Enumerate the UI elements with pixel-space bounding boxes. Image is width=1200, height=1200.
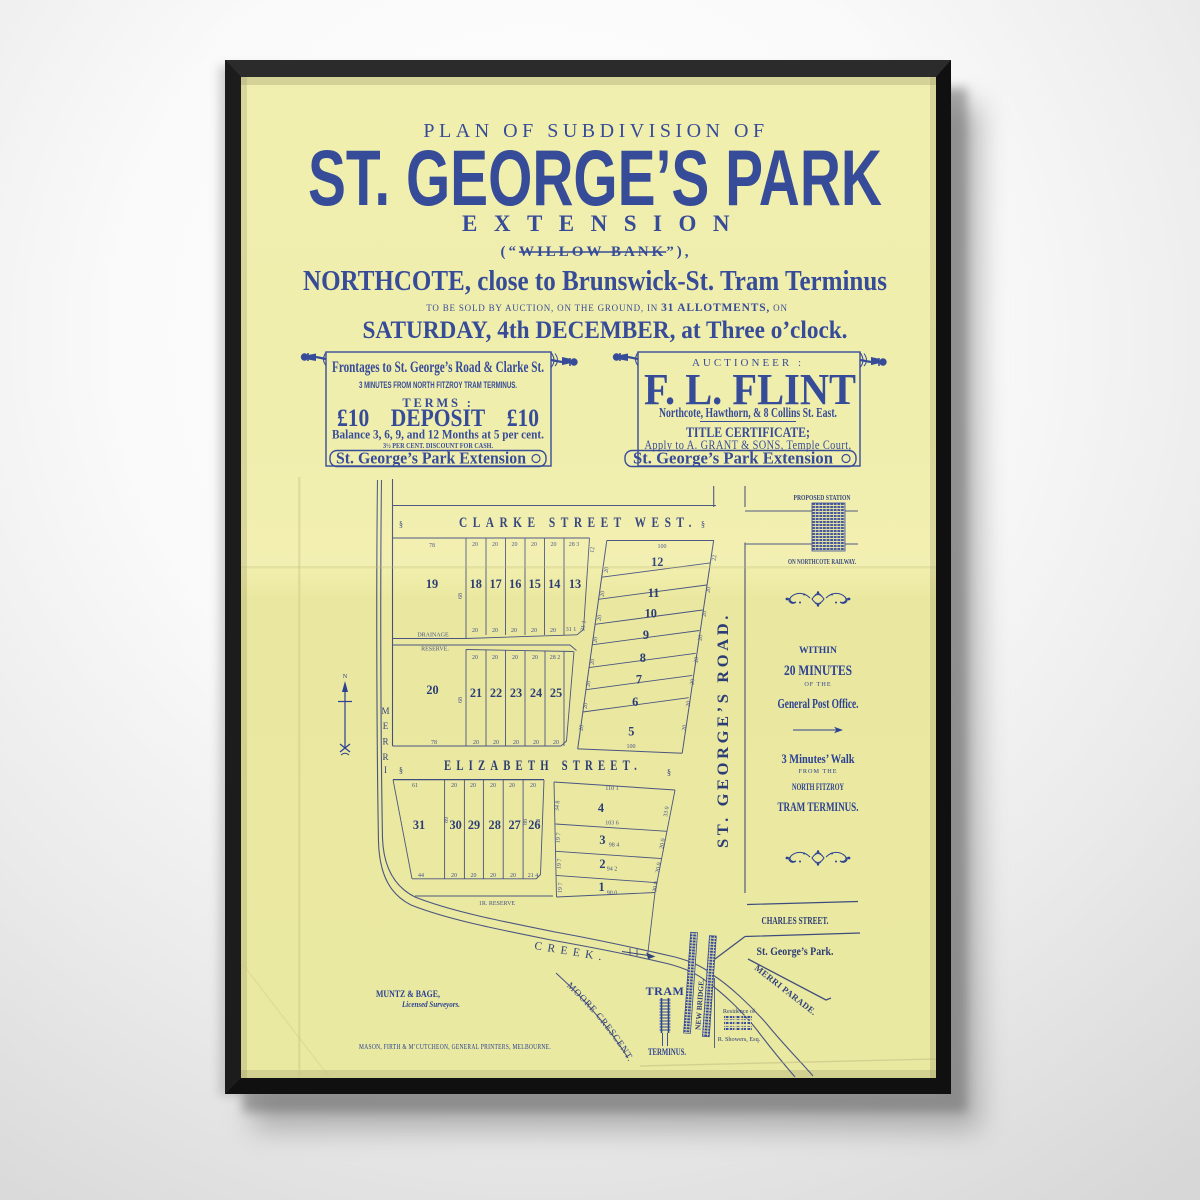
svg-text:16: 16 bbox=[509, 577, 521, 591]
svg-text:20: 20 bbox=[550, 628, 556, 634]
svg-text:100: 100 bbox=[627, 744, 636, 750]
svg-text:E: E bbox=[383, 721, 389, 731]
svg-text:20: 20 bbox=[512, 655, 518, 661]
svg-text:20 MINUTES: 20 MINUTES bbox=[784, 663, 852, 679]
svg-text:R. Showers, Esq.: R. Showers, Esq. bbox=[718, 1036, 761, 1043]
svg-text:20: 20 bbox=[586, 680, 593, 687]
svg-text:20: 20 bbox=[690, 678, 697, 685]
svg-text:31 1: 31 1 bbox=[566, 627, 577, 633]
svg-text:20: 20 bbox=[686, 700, 693, 707]
svg-text:20: 20 bbox=[698, 634, 705, 641]
svg-text:20: 20 bbox=[490, 783, 496, 789]
svg-text:13: 13 bbox=[569, 577, 581, 591]
svg-text:20: 20 bbox=[593, 636, 600, 643]
svg-text:20: 20 bbox=[513, 740, 519, 746]
svg-text:TRAM: TRAM bbox=[646, 984, 685, 998]
svg-text:19 7: 19 7 bbox=[557, 858, 564, 869]
svg-text:21 4: 21 4 bbox=[528, 873, 539, 879]
svg-text:General Post Office.: General Post Office. bbox=[778, 696, 859, 711]
svg-text:CHARLES STREET.: CHARLES STREET. bbox=[762, 916, 829, 927]
svg-text:28: 28 bbox=[489, 818, 501, 832]
svg-text:21: 21 bbox=[470, 686, 482, 700]
svg-text:20: 20 bbox=[694, 656, 701, 663]
svg-text:20: 20 bbox=[490, 873, 496, 879]
svg-text:8: 8 bbox=[640, 651, 646, 665]
svg-text:R: R bbox=[382, 752, 388, 762]
svg-text:15: 15 bbox=[529, 577, 541, 591]
svg-text:20: 20 bbox=[511, 628, 517, 634]
svg-text:Residence of: Residence of bbox=[723, 1008, 756, 1015]
svg-text:NORTH FITZROY: NORTH FITZROY bbox=[792, 783, 844, 793]
svg-text:90 0: 90 0 bbox=[607, 891, 618, 897]
svg-text:I: I bbox=[384, 765, 387, 775]
svg-text:61: 61 bbox=[412, 783, 418, 789]
svg-text:DRAINAGE: DRAINAGE bbox=[417, 633, 449, 639]
svg-text:19 7: 19 7 bbox=[558, 882, 565, 893]
svg-text:20: 20 bbox=[472, 655, 478, 661]
svg-text:§: § bbox=[667, 768, 671, 777]
svg-text:9: 9 bbox=[643, 628, 649, 642]
svg-text:20: 20 bbox=[532, 655, 538, 661]
svg-text:20: 20 bbox=[590, 658, 597, 665]
svg-text:§: § bbox=[399, 766, 403, 775]
svg-text:20: 20 bbox=[702, 610, 709, 617]
svg-text:20: 20 bbox=[473, 740, 479, 746]
svg-text:20: 20 bbox=[553, 740, 559, 746]
svg-text:20: 20 bbox=[470, 783, 476, 789]
svg-text:19: 19 bbox=[426, 577, 438, 591]
svg-text:ELIZABETH STREET.: ELIZABETH STREET. bbox=[444, 758, 642, 774]
svg-text:10: 10 bbox=[645, 607, 657, 621]
svg-text:20: 20 bbox=[510, 873, 516, 879]
svg-text:R: R bbox=[382, 737, 388, 747]
svg-text:20: 20 bbox=[451, 873, 457, 879]
svg-text:98 4: 98 4 bbox=[609, 843, 620, 849]
svg-text:2: 2 bbox=[599, 857, 605, 871]
svg-text:78: 78 bbox=[431, 740, 437, 746]
svg-text:WITHIN: WITHIN bbox=[799, 646, 837, 656]
svg-text:34 8: 34 8 bbox=[555, 800, 562, 811]
svg-text:19 7: 19 7 bbox=[556, 832, 563, 843]
svg-text:5: 5 bbox=[628, 725, 634, 739]
svg-text:20: 20 bbox=[579, 724, 586, 731]
svg-text:OF THE: OF THE bbox=[804, 681, 831, 688]
svg-text:6: 6 bbox=[632, 695, 638, 709]
svg-text:20: 20 bbox=[597, 614, 604, 621]
svg-text:78: 78 bbox=[536, 819, 542, 825]
svg-text:20: 20 bbox=[509, 783, 515, 789]
svg-text:29: 29 bbox=[468, 818, 480, 832]
svg-text:20: 20 bbox=[492, 628, 498, 634]
svg-text:M: M bbox=[381, 706, 389, 716]
svg-text:24: 24 bbox=[530, 686, 542, 700]
svg-text:Licensed Surveyors.: Licensed Surveyors. bbox=[401, 999, 460, 1009]
svg-text:St. George’s Park.: St. George’s Park. bbox=[757, 946, 834, 958]
svg-text:20: 20 bbox=[682, 724, 689, 731]
svg-text:22: 22 bbox=[490, 686, 502, 700]
svg-text:20: 20 bbox=[472, 628, 478, 634]
svg-text:68: 68 bbox=[458, 593, 464, 599]
svg-text:4: 4 bbox=[598, 801, 604, 815]
svg-text:20: 20 bbox=[531, 628, 537, 634]
svg-text:20: 20 bbox=[533, 740, 539, 746]
svg-text:1R. RESERVE: 1R. RESERVE bbox=[479, 901, 516, 907]
svg-text:3 Minutes’ Walk: 3 Minutes’ Walk bbox=[782, 752, 855, 766]
svg-text:11: 11 bbox=[648, 586, 660, 600]
svg-text:RESERVE.: RESERVE. bbox=[421, 647, 449, 653]
svg-text:20: 20 bbox=[471, 873, 477, 879]
svg-text:17: 17 bbox=[489, 577, 501, 591]
svg-text:TRAM TERMINUS.: TRAM TERMINUS. bbox=[778, 800, 859, 814]
svg-text:14: 14 bbox=[548, 577, 560, 591]
svg-text:20: 20 bbox=[600, 590, 607, 597]
svg-text:MASON, FIRTH & M’CUTCHEON, GEN: MASON, FIRTH & M’CUTCHEON, GENERAL PRINT… bbox=[359, 1042, 551, 1051]
svg-text:20: 20 bbox=[583, 702, 590, 709]
svg-text:103 6: 103 6 bbox=[605, 821, 619, 827]
svg-text:7: 7 bbox=[636, 673, 642, 687]
svg-text:94 2: 94 2 bbox=[607, 867, 618, 873]
svg-text:1: 1 bbox=[599, 880, 605, 894]
svg-text:20: 20 bbox=[426, 683, 438, 697]
svg-text:3: 3 bbox=[599, 833, 605, 847]
svg-text:FROM THE: FROM THE bbox=[798, 768, 837, 775]
svg-text:20: 20 bbox=[493, 740, 499, 746]
svg-text:23: 23 bbox=[510, 686, 522, 700]
svg-text:44: 44 bbox=[418, 873, 424, 879]
svg-text:ST. GEORGE’S ROAD.: ST. GEORGE’S ROAD. bbox=[715, 612, 732, 848]
svg-text:18: 18 bbox=[470, 577, 482, 591]
svg-text:89: 89 bbox=[444, 817, 450, 823]
svg-text:TERMINUS.: TERMINUS. bbox=[648, 1048, 686, 1058]
svg-text:30: 30 bbox=[449, 818, 461, 832]
svg-text:20: 20 bbox=[492, 655, 498, 661]
svg-text:25: 25 bbox=[550, 686, 562, 700]
svg-text:27: 27 bbox=[508, 818, 520, 832]
svg-text:68: 68 bbox=[458, 697, 464, 703]
svg-text:88: 88 bbox=[523, 819, 529, 825]
svg-text:N: N bbox=[343, 673, 348, 680]
svg-text:110 1: 110 1 bbox=[605, 786, 618, 792]
svg-text:31: 31 bbox=[413, 818, 425, 832]
svg-text:28 2: 28 2 bbox=[550, 655, 561, 661]
svg-text:20: 20 bbox=[530, 783, 536, 789]
svg-text:20: 20 bbox=[706, 586, 713, 593]
svg-text:20: 20 bbox=[451, 783, 457, 789]
